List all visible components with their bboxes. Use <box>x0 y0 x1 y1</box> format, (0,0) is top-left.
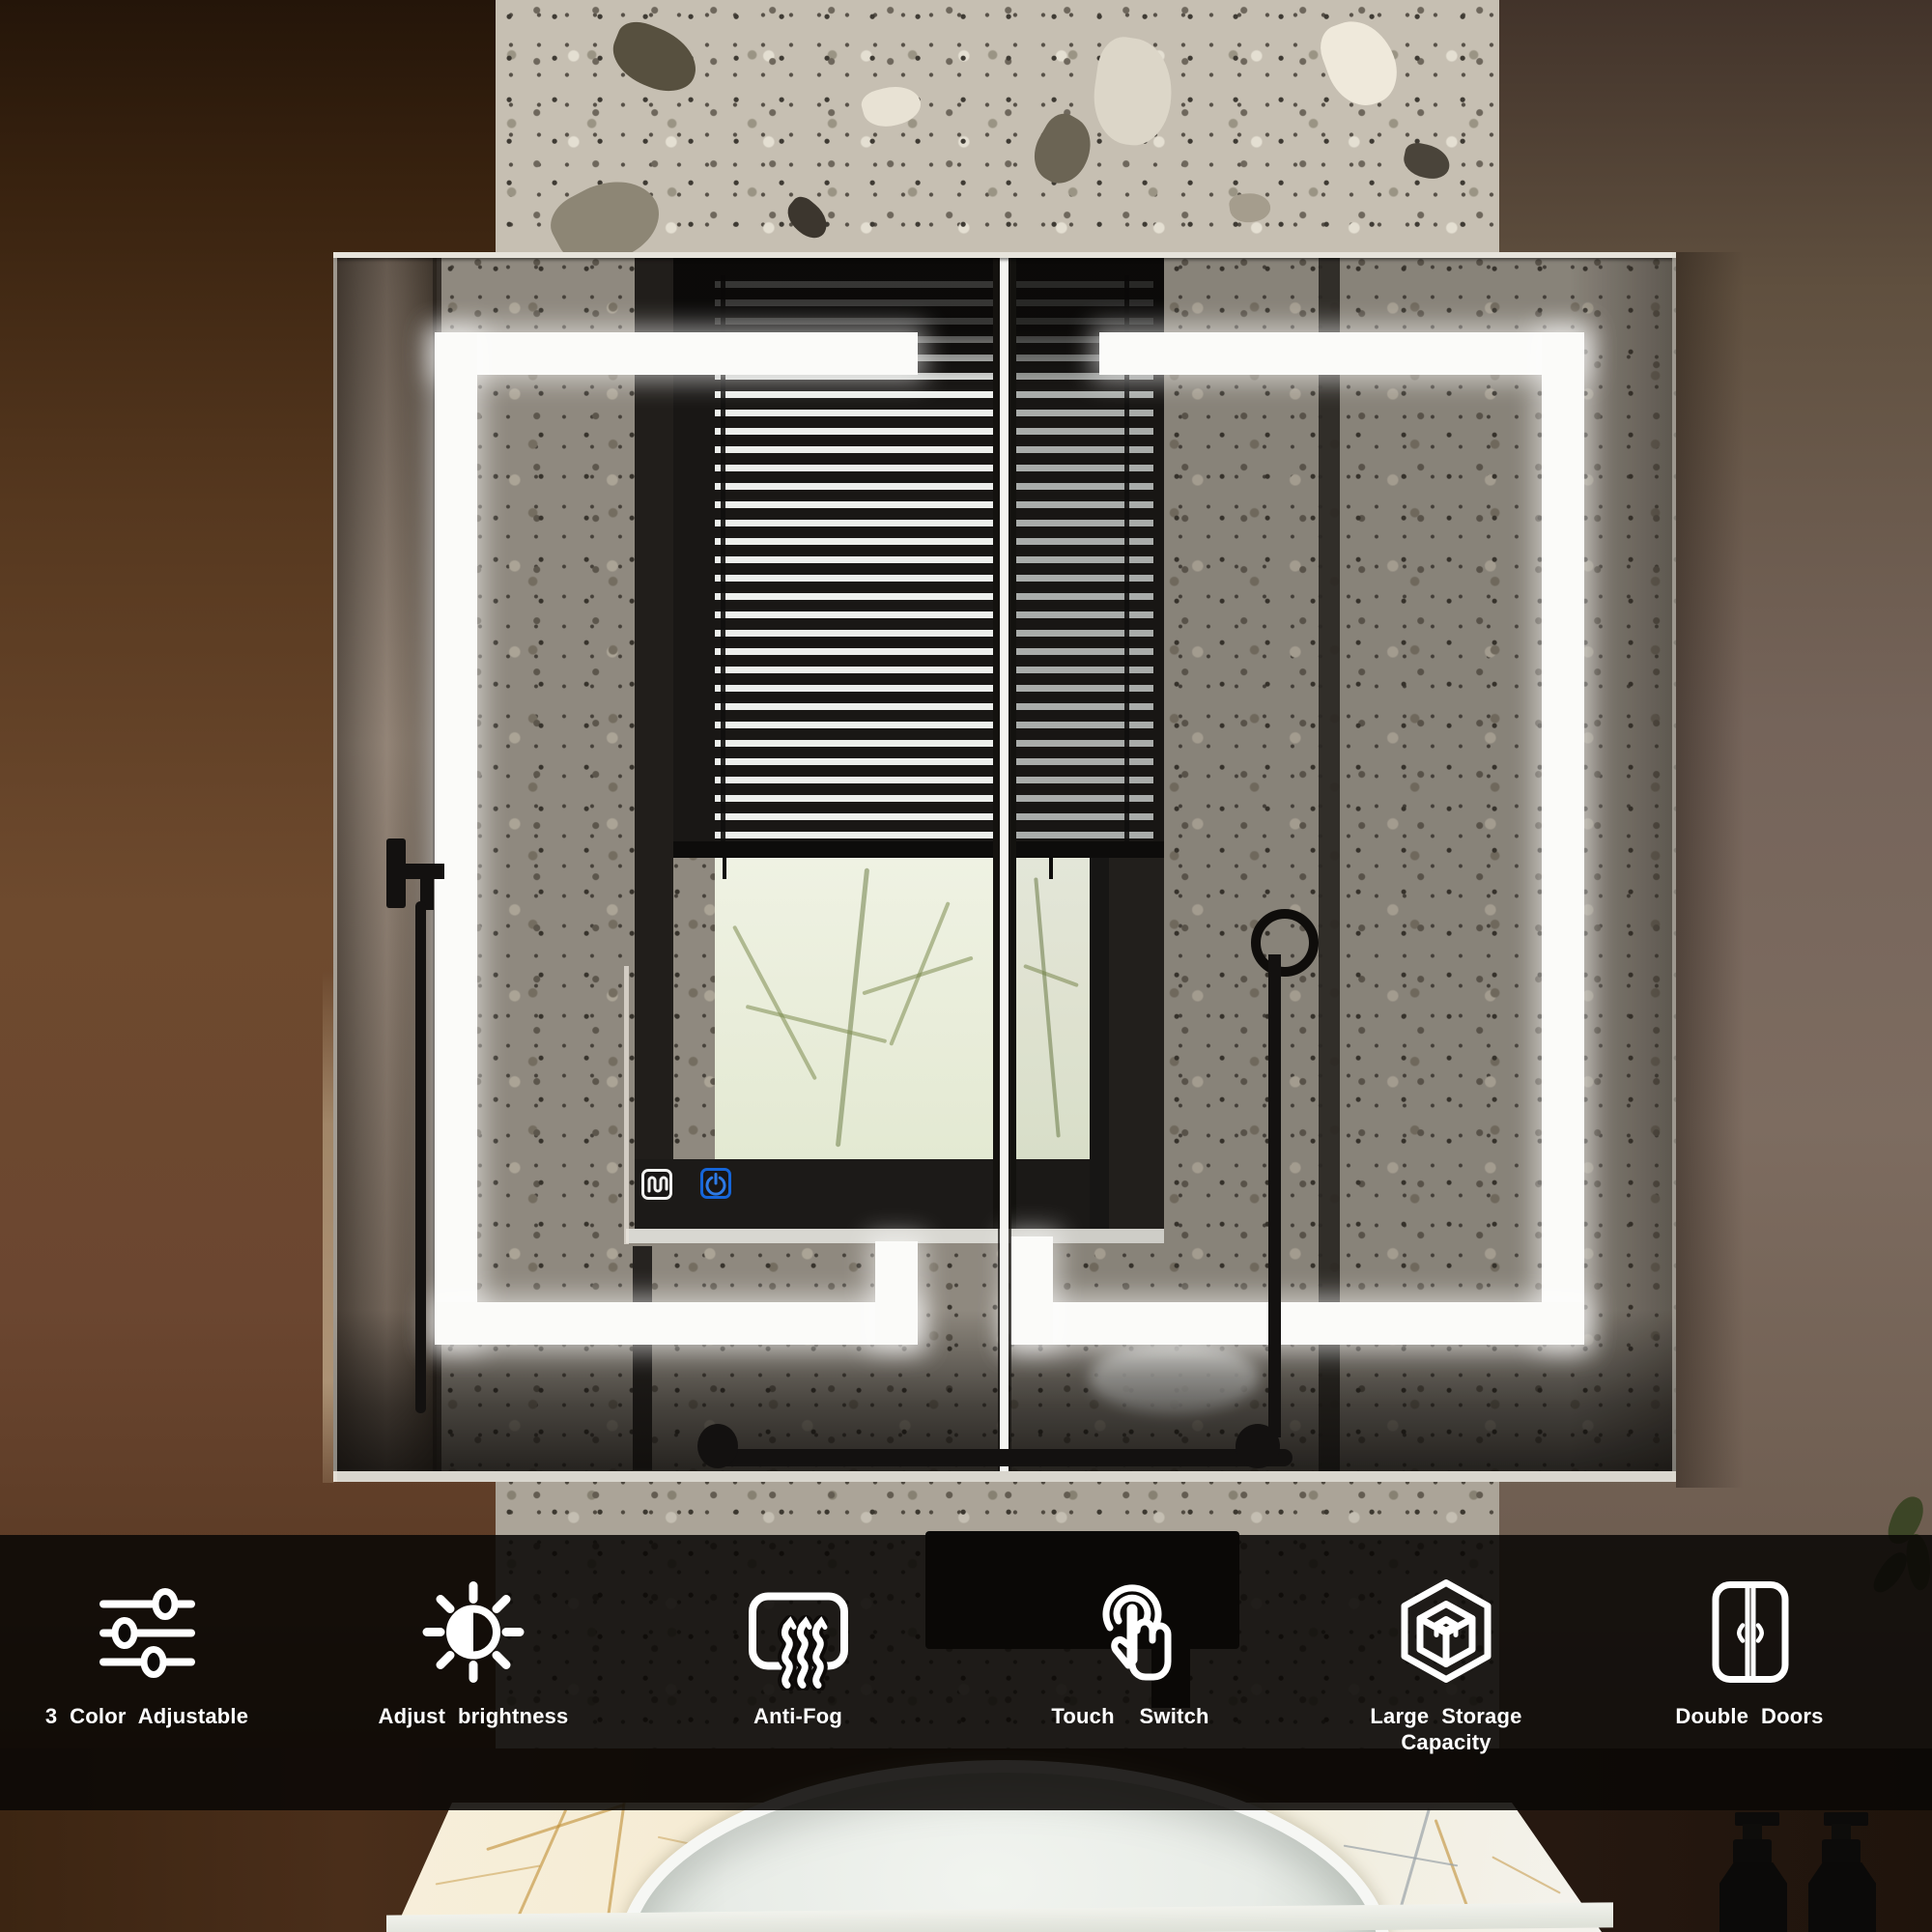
feature-label: 3 Color Adjustable <box>12 1704 282 1730</box>
mirror-left-edge <box>333 252 337 1482</box>
mirror-bottom-edge <box>333 1471 1676 1482</box>
feature-touch-switch: Touch Switch <box>995 1575 1265 1797</box>
towel-bar-elbow <box>1236 1424 1280 1468</box>
soap-bottle <box>1719 1812 1787 1932</box>
led-strip <box>435 332 477 1345</box>
mirror-cabinet <box>333 252 1676 1482</box>
large-storage-icon <box>1391 1575 1502 1690</box>
mirror-side-shadow <box>1676 252 1744 1488</box>
towel-bar <box>718 1449 1293 1466</box>
led-strip <box>435 332 918 375</box>
led-strip <box>435 1302 918 1345</box>
led-strip <box>875 1241 918 1345</box>
mirror-top-edge <box>333 252 1676 258</box>
feature-double-doors: Double Doors <box>1614 1575 1885 1797</box>
defogger-button[interactable] <box>641 1169 672 1200</box>
shower-bracket <box>386 838 406 908</box>
window-frame-left <box>635 252 673 1243</box>
led-strip <box>1099 332 1584 375</box>
led-strip <box>1010 1302 1584 1345</box>
defogger-icon <box>644 1172 669 1197</box>
product-photo-led-mirror-cabinet: { "feature_band": { "features": [ { "ico… <box>0 0 1932 1932</box>
feature-anti-fog: Anti-Fog <box>663 1575 933 1797</box>
feature-label: Adjust brightness <box>338 1704 609 1730</box>
feature-label: Large Storage Capacity <box>1311 1704 1581 1756</box>
mirror-right-edge <box>1672 252 1676 1482</box>
window-edge-highlight <box>624 966 629 1244</box>
anti-fog-icon <box>743 1575 854 1690</box>
feature-large-storage: Large Storage Capacity <box>1311 1575 1581 1797</box>
color-adjustable-icon <box>92 1575 203 1690</box>
power-button[interactable] <box>700 1168 731 1199</box>
adjust-brightness-icon <box>418 1575 529 1690</box>
blind-pull-cord <box>723 858 726 879</box>
towel-rod <box>1268 954 1281 1437</box>
feature-adjust-brightness: Adjust brightness <box>338 1575 609 1797</box>
feature-label: Touch Switch <box>995 1704 1265 1730</box>
shower-bracket-arm <box>404 864 444 879</box>
soap-bottle <box>1808 1812 1876 1932</box>
feature-color-adjustable: 3 Color Adjustable <box>12 1575 282 1797</box>
door-seam <box>998 252 1011 1482</box>
double-doors-icon <box>1694 1575 1805 1690</box>
feature-label: Double Doors <box>1614 1704 1885 1730</box>
touch-switch-icon <box>1072 1575 1188 1690</box>
towel-ring <box>1251 909 1319 977</box>
led-strip <box>1010 1236 1053 1345</box>
towel-bar-flange <box>697 1424 738 1468</box>
power-icon <box>703 1171 728 1196</box>
led-strip <box>1542 332 1584 1345</box>
window-tree-view <box>715 858 997 1159</box>
feature-label: Anti-Fog <box>663 1704 933 1730</box>
shower-wand <box>415 901 426 1413</box>
